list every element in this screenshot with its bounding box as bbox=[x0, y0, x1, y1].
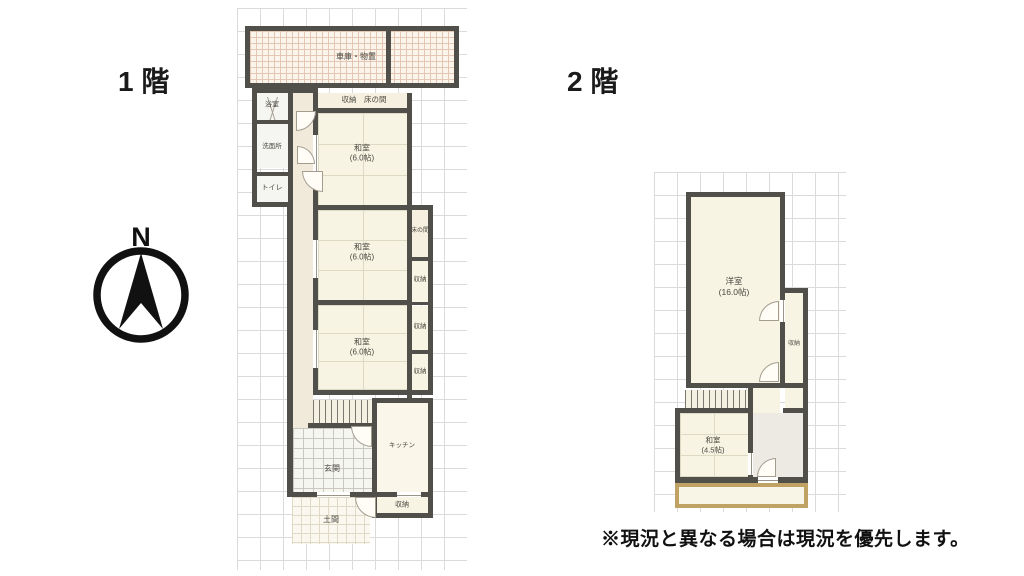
disclaimer-note: ※現況と異なる場合は現況を優先します。 bbox=[601, 524, 970, 551]
room-label-closet2: 収納 bbox=[414, 323, 427, 331]
room-label-kitchen-storage: 収納 bbox=[395, 500, 409, 509]
floorplan-page: 1 階 2 階 N bbox=[0, 0, 1024, 576]
room-label-western: 洋室 (16.0帖) bbox=[719, 276, 750, 298]
room-label-japanese-2f: 和室 (4.5帖) bbox=[702, 435, 725, 455]
wall bbox=[428, 398, 433, 518]
hall-pocket-area bbox=[785, 388, 803, 408]
room-label-closet1: 収納 bbox=[414, 276, 427, 284]
wall bbox=[252, 120, 293, 124]
room-label-toilet: トイレ bbox=[262, 183, 283, 192]
floor2-title: 2 階 bbox=[567, 60, 618, 100]
room-label-japanese-room1: 和室 (6.0帖) bbox=[350, 144, 374, 165]
wall bbox=[313, 390, 433, 395]
wall bbox=[686, 192, 785, 197]
wall bbox=[454, 26, 459, 88]
compass-north-label: N bbox=[131, 222, 151, 252]
room-label-closet-2f: 収納 bbox=[788, 341, 800, 349]
sliding-door bbox=[313, 135, 318, 173]
corridor-area bbox=[293, 207, 313, 428]
room-label-washroom: 洗面所 bbox=[262, 143, 282, 151]
wall bbox=[803, 288, 808, 483]
sliding-door bbox=[397, 492, 421, 497]
room-label-japanese-room3: 和室 (6.0帖) bbox=[350, 338, 374, 359]
room-label-closet3: 収納 bbox=[414, 368, 427, 376]
wall bbox=[386, 31, 391, 83]
closet-area-2f bbox=[785, 293, 803, 383]
room-label-tokonoma: 床の間 bbox=[411, 228, 429, 236]
wall bbox=[372, 398, 428, 403]
room-label-storage-tokonoma: 収納 床の間 bbox=[342, 95, 387, 105]
room-label-kitchen: キッチン bbox=[389, 442, 415, 450]
wall bbox=[245, 26, 459, 31]
sliding-door bbox=[313, 240, 318, 278]
balcony-area bbox=[675, 483, 808, 508]
floor1-title: 1 階 bbox=[118, 60, 169, 100]
hallway-area-2f bbox=[753, 388, 780, 413]
wall bbox=[252, 88, 257, 207]
wall bbox=[675, 408, 680, 482]
room-label-doma: 土間 bbox=[323, 515, 339, 525]
room-label-bath: 浴室 bbox=[265, 100, 279, 109]
room-label-garage: 車庫・物置 bbox=[336, 52, 376, 62]
wall bbox=[245, 26, 250, 88]
room-label-entrance: 玄関 bbox=[324, 464, 340, 474]
wall bbox=[412, 350, 428, 354]
wall bbox=[412, 257, 428, 261]
room-label-japanese-room2: 和室 (6.0帖) bbox=[350, 243, 374, 264]
sliding-door bbox=[313, 330, 318, 368]
door-opening bbox=[748, 453, 753, 475]
compass-icon: N bbox=[88, 216, 194, 348]
stairs-area bbox=[313, 400, 372, 423]
wall bbox=[372, 513, 433, 518]
wall bbox=[252, 172, 293, 176]
wall bbox=[686, 192, 691, 388]
